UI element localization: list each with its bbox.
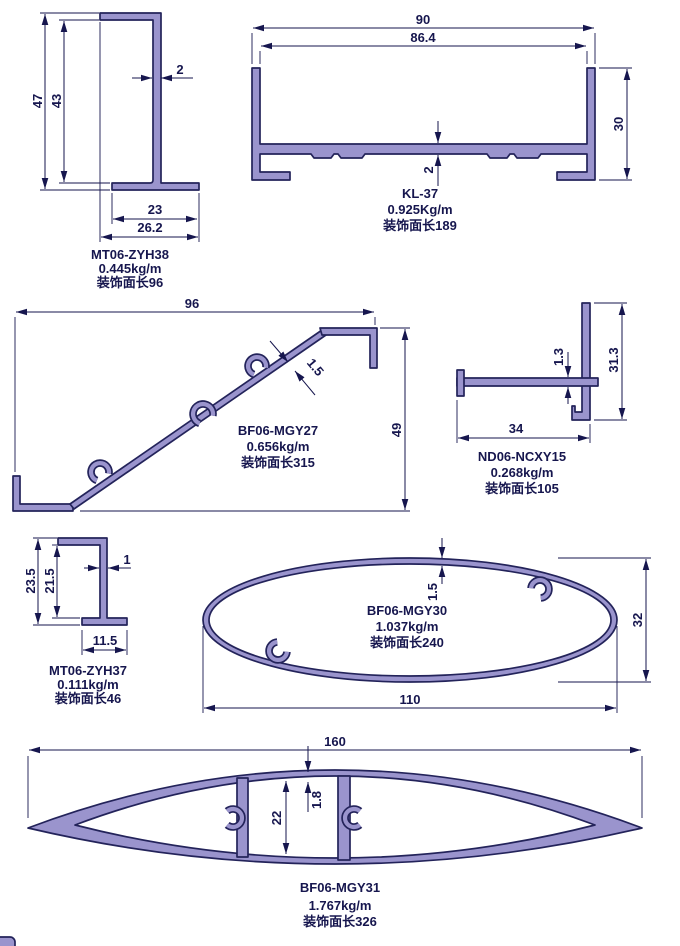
caption-weight: 0.111kg/m [57,677,118,692]
profile-nd06-ncxy15: 1.3 31.3 34 ND06-NCXY15 0.268kg/m 装饰面长10… [457,303,627,496]
profile-top-right-hook [320,328,377,368]
dim-thickness: 2 [176,62,183,77]
dim-inner-width: 86.4 [410,30,436,45]
caption-decor-length: 装饰面长326 [302,914,377,929]
caption-decor-length: 装饰面长189 [382,218,457,233]
caption-weight: 0.268kg/m [491,465,554,480]
profiles-drawing: 47 43 2 23 26.2 MT06-ZYH38 0.445kg/m 装饰面… [0,0,680,946]
caption-decor-length: 装饰面长240 [369,635,444,650]
profile-mt06-zyh38: 47 43 2 23 26.2 MT06-ZYH38 0.445kg/m 装饰面… [30,13,199,290]
profile-vertical-bar [572,303,590,420]
dim-overall-height: 23.5 [23,568,38,593]
dim-flange-width: 23 [148,202,162,217]
dim-overall-width: 90 [416,12,430,27]
profile-outline [58,538,127,625]
profile-kl-37: 90 86.4 30 2 KL-37 0.925Kg/m 装饰面长189 [252,12,632,233]
dim-height: 31.3 [606,347,621,372]
profile-horizontal-bar [457,378,598,386]
dim-thickness: 1.5 [304,355,327,378]
caption-weight: 1.037kg/m [376,619,439,634]
dim-thickness: 1 [123,552,130,567]
technical-drawing-sheet: 47 43 2 23 26.2 MT06-ZYH38 0.445kg/m 装饰面… [0,0,680,946]
dim-overall-width: 26.2 [137,220,162,235]
dim-width: 160 [324,734,346,749]
profile-mt06-zyh37: 23.5 21.5 1 11.5 MT06-ZYH37 0.111kg/m 装饰… [23,538,131,706]
profile-bf06-mgy30: 1.5 32 110 BF06-MGY30 1.037kg/m 装饰面长240 [203,538,651,713]
dim-bar-thickness: 1.3 [551,348,566,366]
caption-model: KL-37 [402,186,438,201]
caption-weight: 0.925Kg/m [387,202,452,217]
profile-bf06-mgy27: 96 49 1.5 BF06-MGY27 0.656kg/m 装饰面长315 [13,296,410,511]
dim-height: 30 [611,117,626,131]
dim-width: 11.5 [93,633,118,648]
partial-profile-corner [0,937,15,946]
dim-inner-height: 43 [49,94,64,108]
caption-decor-length: 装饰面长46 [54,691,121,706]
dim-width: 110 [400,692,421,707]
caption-decor-length: 装饰面长315 [240,455,315,470]
profile-bf06-mgy31: 160 1.8 22 BF06-MGY31 1.767kg/m 装饰面长326 [28,734,642,929]
caption-model: BF06-MGY31 [300,880,380,895]
caption-model: MT06-ZYH37 [49,663,127,678]
caption-weight: 0.445kg/m [99,261,162,276]
caption-model: ND06-NCXY15 [478,449,566,464]
caption-model: BF06-MGY27 [238,423,318,438]
dim-height: 49 [389,423,404,437]
profile-lens-outline [28,770,642,864]
caption-model: BF06-MGY30 [367,603,447,618]
dim-box-height: 22 [269,811,284,825]
dim-overall-height: 47 [30,94,45,108]
caption-weight: 1.767kg/m [309,898,372,913]
profile-outline [252,68,595,180]
dim-wall-thickness: 1.5 [425,583,440,601]
dim-width: 96 [185,296,199,311]
dim-height: 32 [630,613,645,627]
profile-outline [100,13,199,190]
dim-inner-height: 21.5 [42,568,57,593]
caption-weight: 0.656kg/m [247,439,310,454]
dim-width: 34 [509,421,524,436]
caption-decor-length: 装饰面长96 [96,275,163,290]
caption-decor-length: 装饰面长105 [484,481,559,496]
dim-wall-thickness: 1.8 [309,791,324,809]
dim-thickness: 2 [421,166,436,173]
profile-hook-bottom-left [13,476,73,511]
caption-model: MT06-ZYH38 [91,247,169,262]
profile-left-end-cap [457,370,464,396]
